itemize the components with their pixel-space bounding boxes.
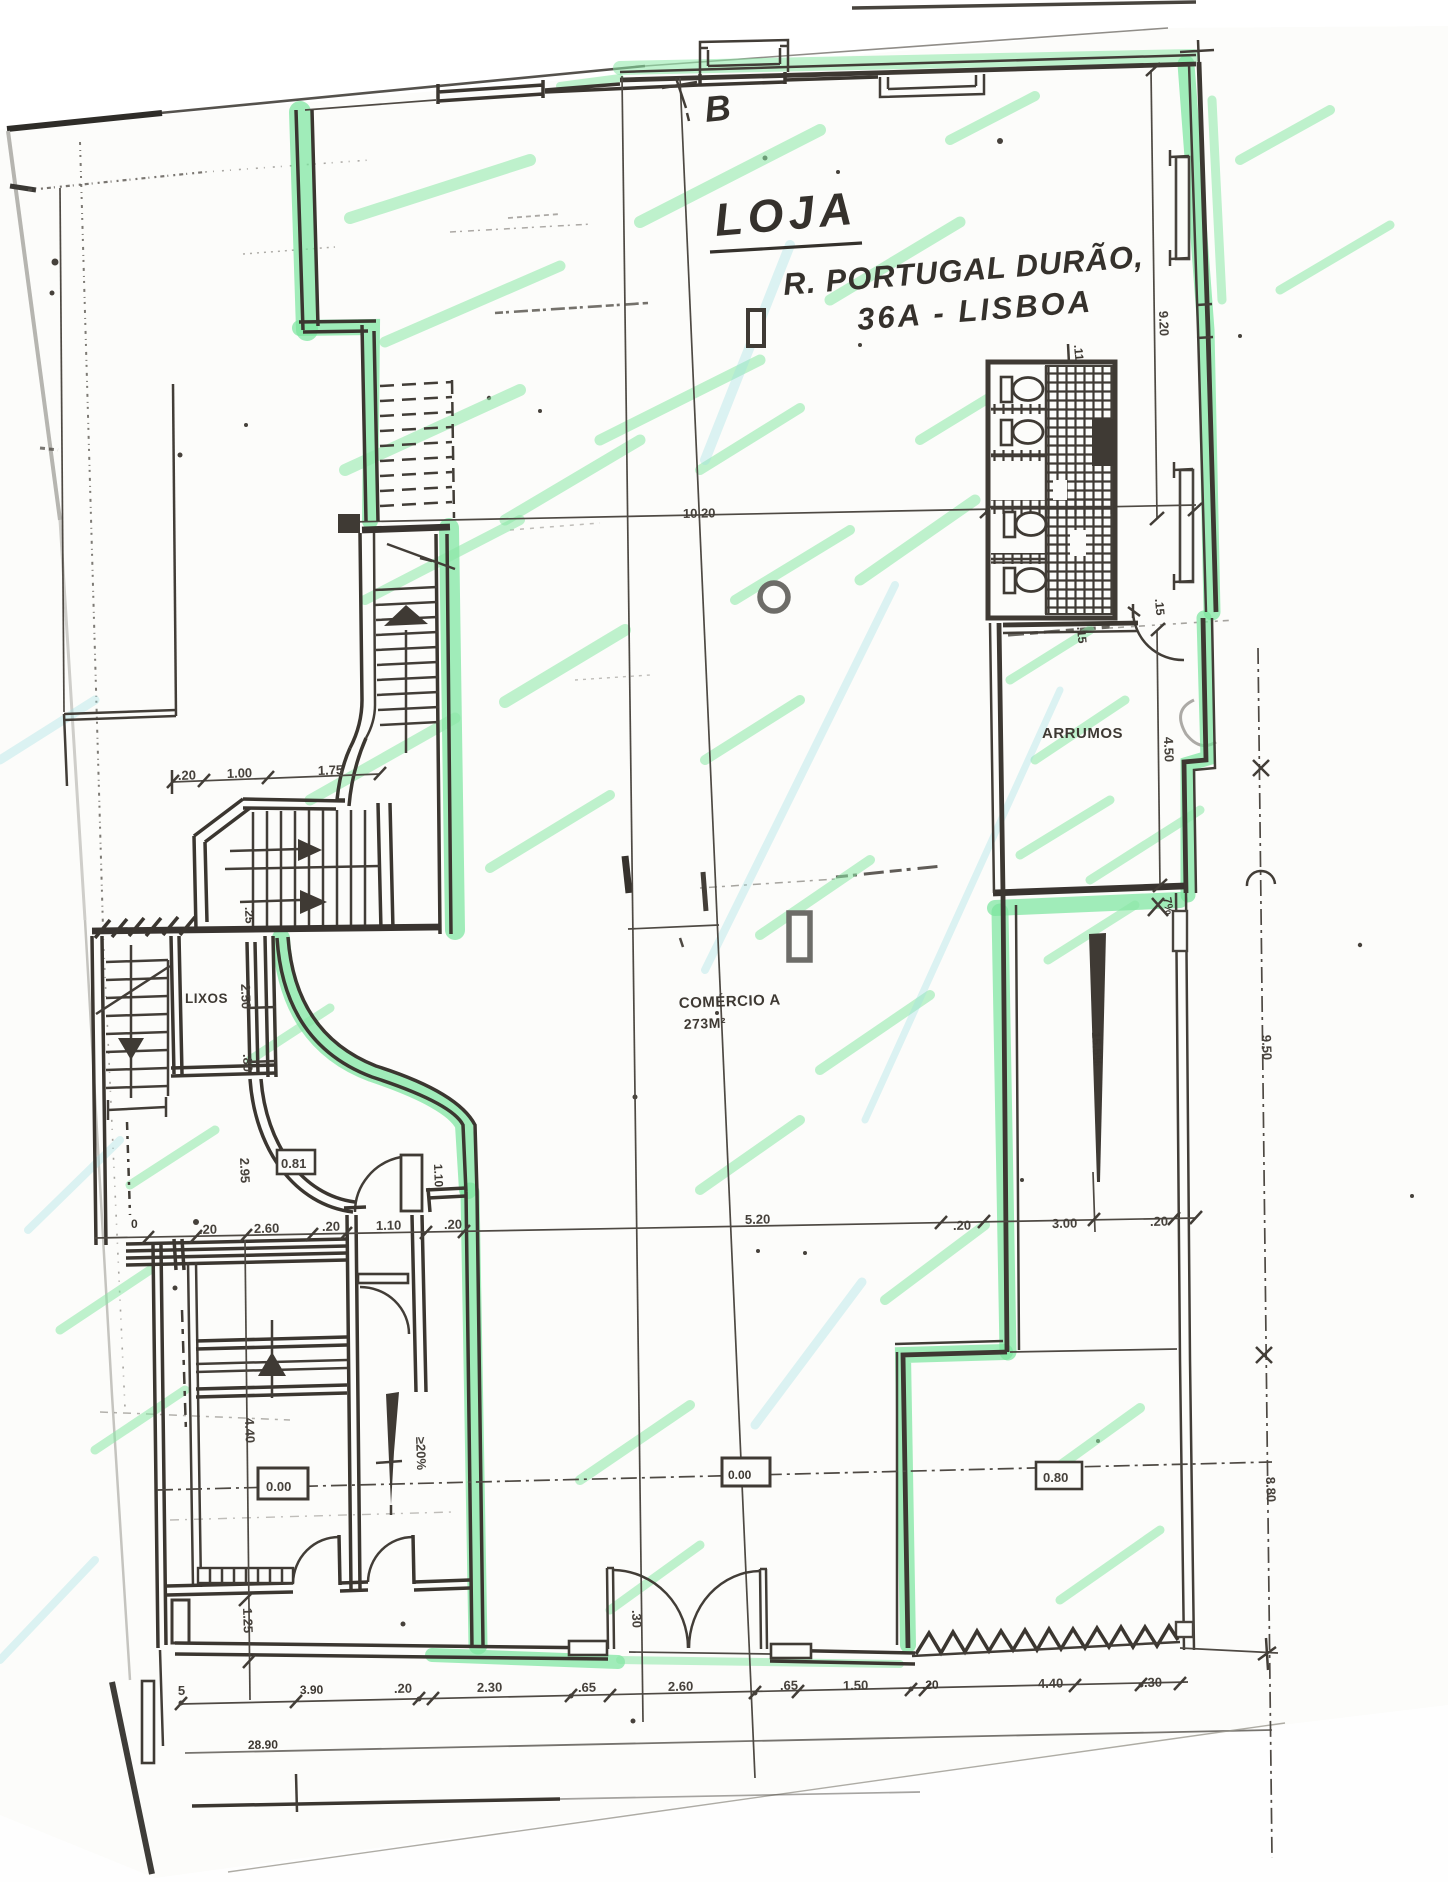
svg-text:9.20: 9.20 [1156,311,1172,337]
svg-text:1.00: 1.00 [227,765,253,781]
svg-text:.11: .11 [1071,344,1086,362]
svg-text:.20: .20 [444,1217,462,1232]
svg-text:3.90: 3.90 [300,1683,324,1697]
svg-text:3.00: 3.00 [1052,1216,1078,1231]
svg-text:0: 0 [131,1217,138,1231]
svg-text:ARRUMOS: ARRUMOS [1042,725,1123,742]
svg-text:.25: .25 [242,907,257,924]
svg-text:1.50: 1.50 [843,1678,869,1693]
svg-text:1.10: 1.10 [431,1164,446,1188]
svg-text:1.25: 1.25 [240,1608,256,1634]
svg-text:B: B [703,86,733,129]
svg-text:.30: .30 [1144,1675,1162,1690]
svg-text:0.80: 0.80 [1043,1470,1068,1485]
svg-text:4.40: 4.40 [242,1418,258,1444]
svg-text:.65: .65 [578,1680,596,1695]
svg-text:COMÉRCIO A: COMÉRCIO A [679,991,781,1012]
svg-text:.80: .80 [240,1054,256,1073]
svg-text:28.90: 28.90 [248,1737,279,1752]
svg-text:0.81: 0.81 [281,1156,306,1171]
svg-text:.20: .20 [394,1681,412,1696]
svg-text:.20: .20 [178,767,197,783]
svg-text:1.10: 1.10 [376,1218,402,1233]
svg-text:10.20: 10.20 [683,505,716,521]
svg-text:4.50: 4.50 [1161,737,1177,763]
svg-text:≥20%: ≥20% [413,1437,429,1471]
svg-text:1.75: 1.75 [318,762,344,778]
svg-text:9.50: 9.50 [1259,1035,1275,1061]
svg-text:.20: .20 [922,1678,939,1692]
svg-text:8.80: 8.80 [1263,1477,1279,1503]
svg-text:.15: .15 [1152,598,1167,616]
svg-text:4.40: 4.40 [1038,1676,1064,1691]
svg-text:.20: .20 [199,1222,217,1237]
svg-text:5: 5 [178,1683,185,1698]
svg-text:2.60: 2.60 [668,1679,694,1694]
svg-text:.65: .65 [780,1678,798,1693]
svg-text:LIXOS: LIXOS [185,991,228,1006]
svg-text:2.50: 2.50 [238,984,254,1010]
svg-text:.30: .30 [629,1610,645,1629]
svg-text:.20: .20 [322,1219,340,1234]
svg-text:0.00: 0.00 [728,1468,752,1482]
svg-text:273M²: 273M² [684,1015,727,1032]
svg-text:5.20: 5.20 [745,1212,771,1227]
svg-text:15.5%: 15.5% [1089,1031,1105,1066]
svg-text:2.95: 2.95 [237,1158,253,1184]
svg-text:2.30: 2.30 [477,1680,503,1695]
svg-text:.15: .15 [1074,626,1089,644]
svg-text:.20: .20 [1150,1214,1168,1229]
svg-text:2.60: 2.60 [254,1221,280,1236]
svg-text:.20: .20 [953,1218,971,1233]
svg-text:0.00: 0.00 [266,1479,291,1494]
